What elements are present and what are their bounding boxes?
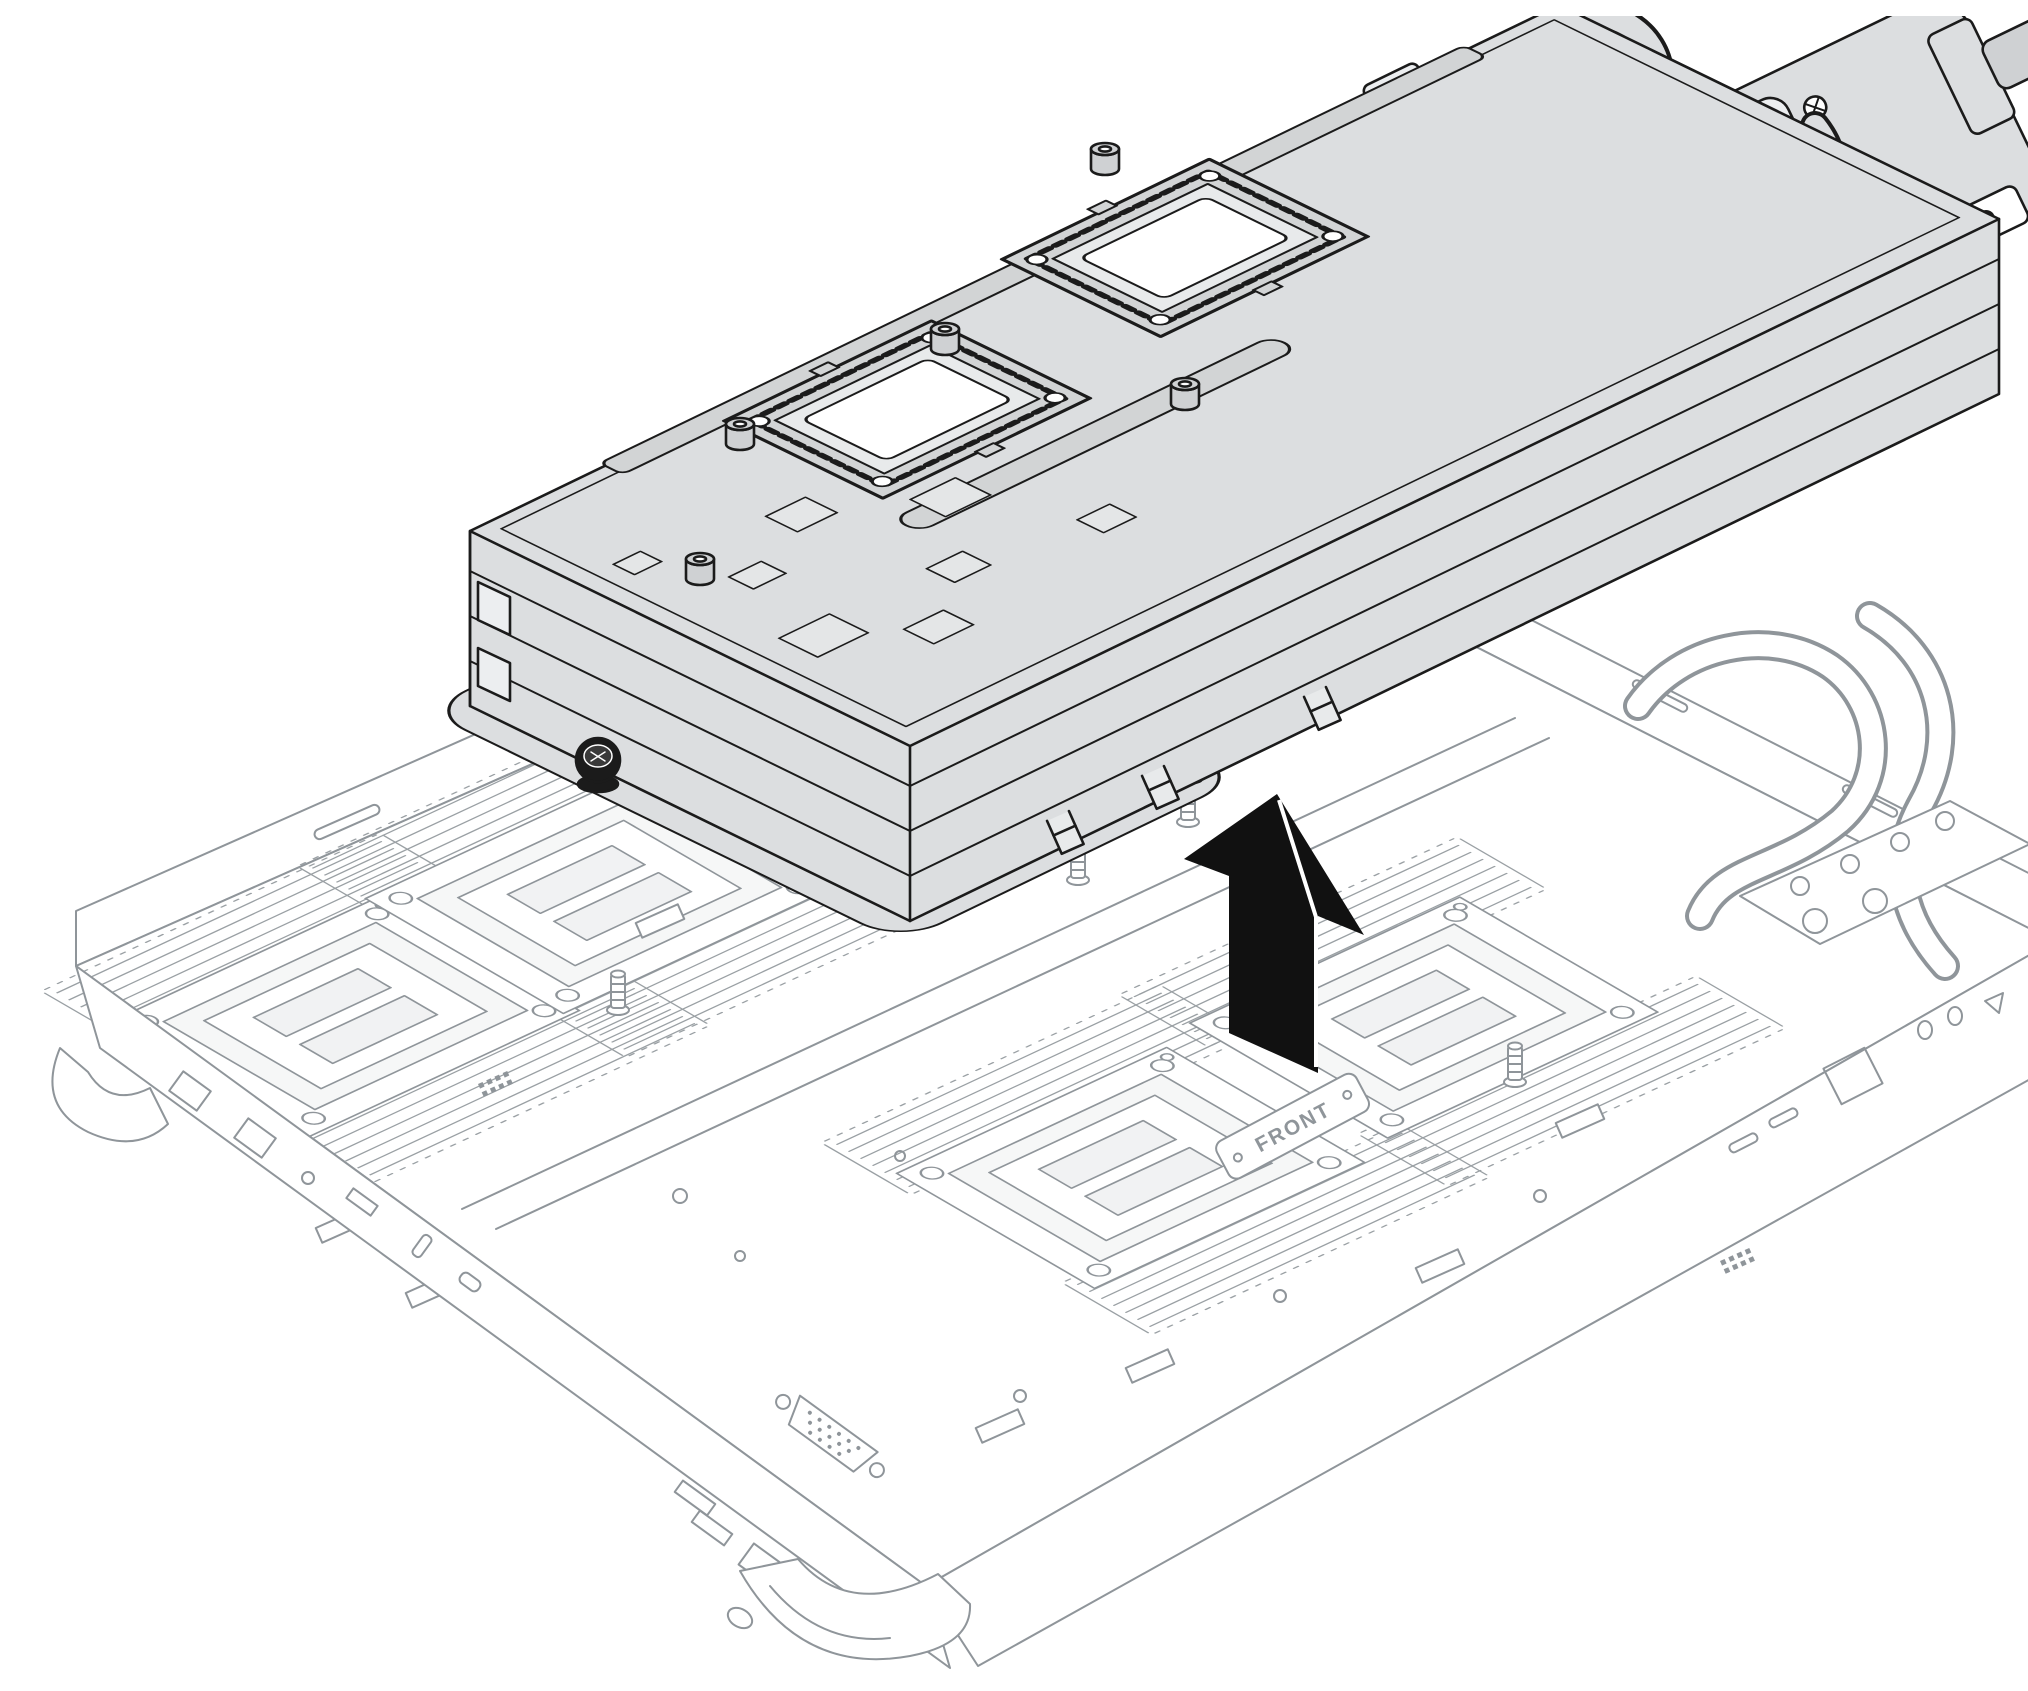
- standoff: [686, 553, 714, 585]
- standoff: [726, 418, 754, 450]
- illustration-svg: FRONT: [40, 16, 2028, 1675]
- standoff: [1171, 378, 1199, 410]
- pin-header: [1720, 1248, 1755, 1274]
- guide-post: [607, 971, 629, 1016]
- usb-port: [692, 1511, 733, 1546]
- service-illustration: FRONT: [40, 16, 2028, 1675]
- standoff: [1091, 143, 1119, 175]
- guide-post: [1504, 1043, 1526, 1088]
- thumbscrew: [576, 738, 620, 792]
- standoff: [931, 323, 959, 355]
